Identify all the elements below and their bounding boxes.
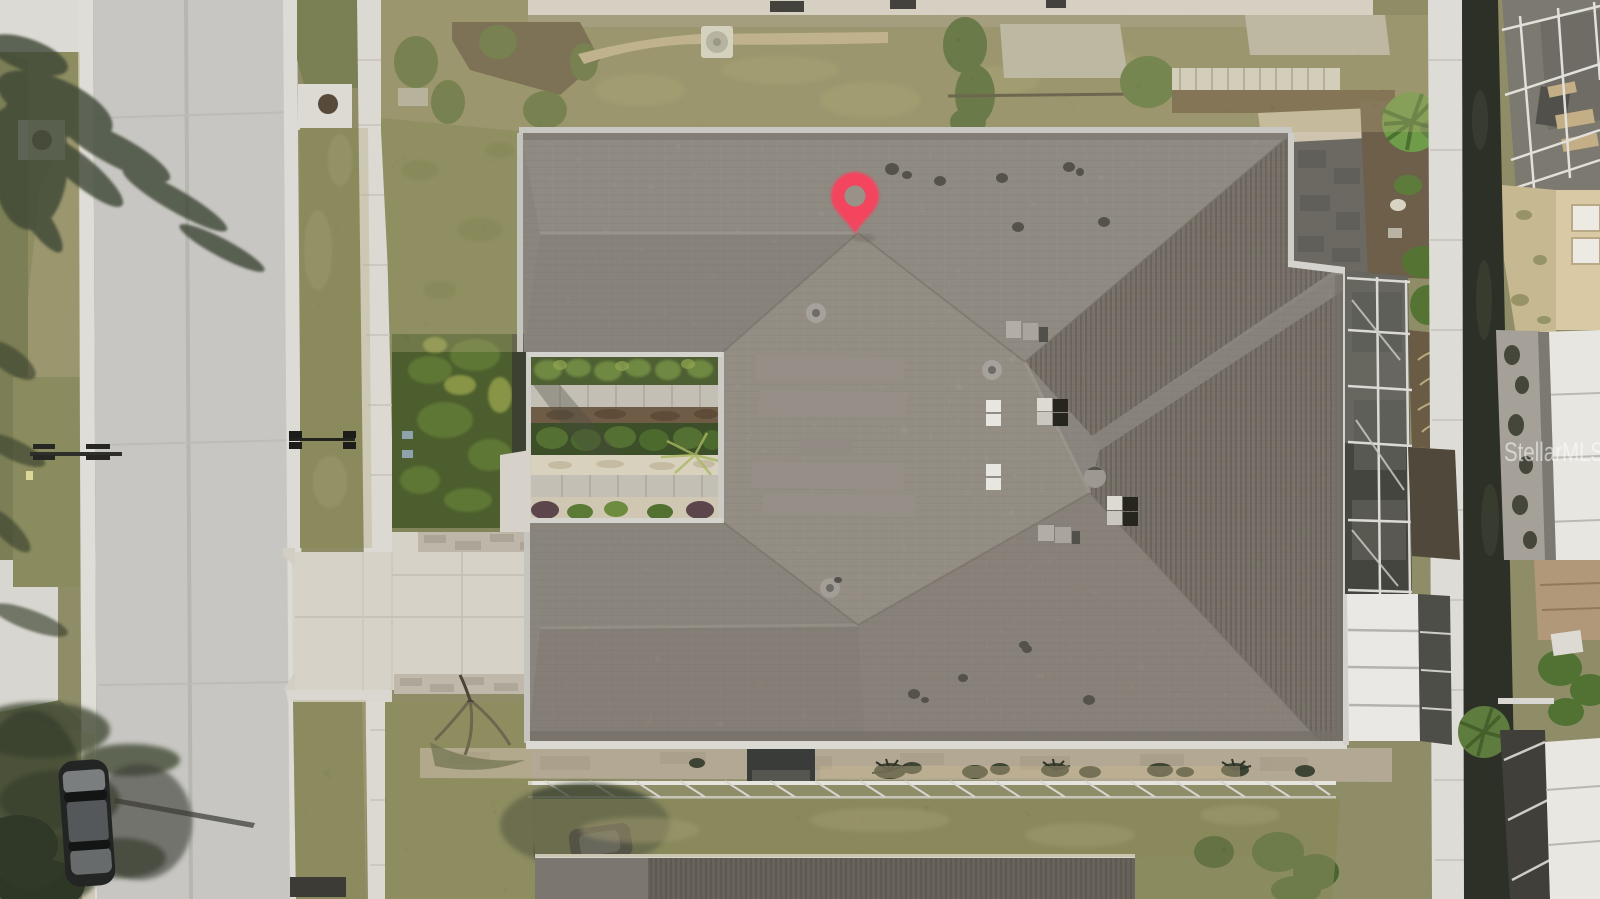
svg-text:StellarMLS: StellarMLS [1504, 437, 1600, 467]
